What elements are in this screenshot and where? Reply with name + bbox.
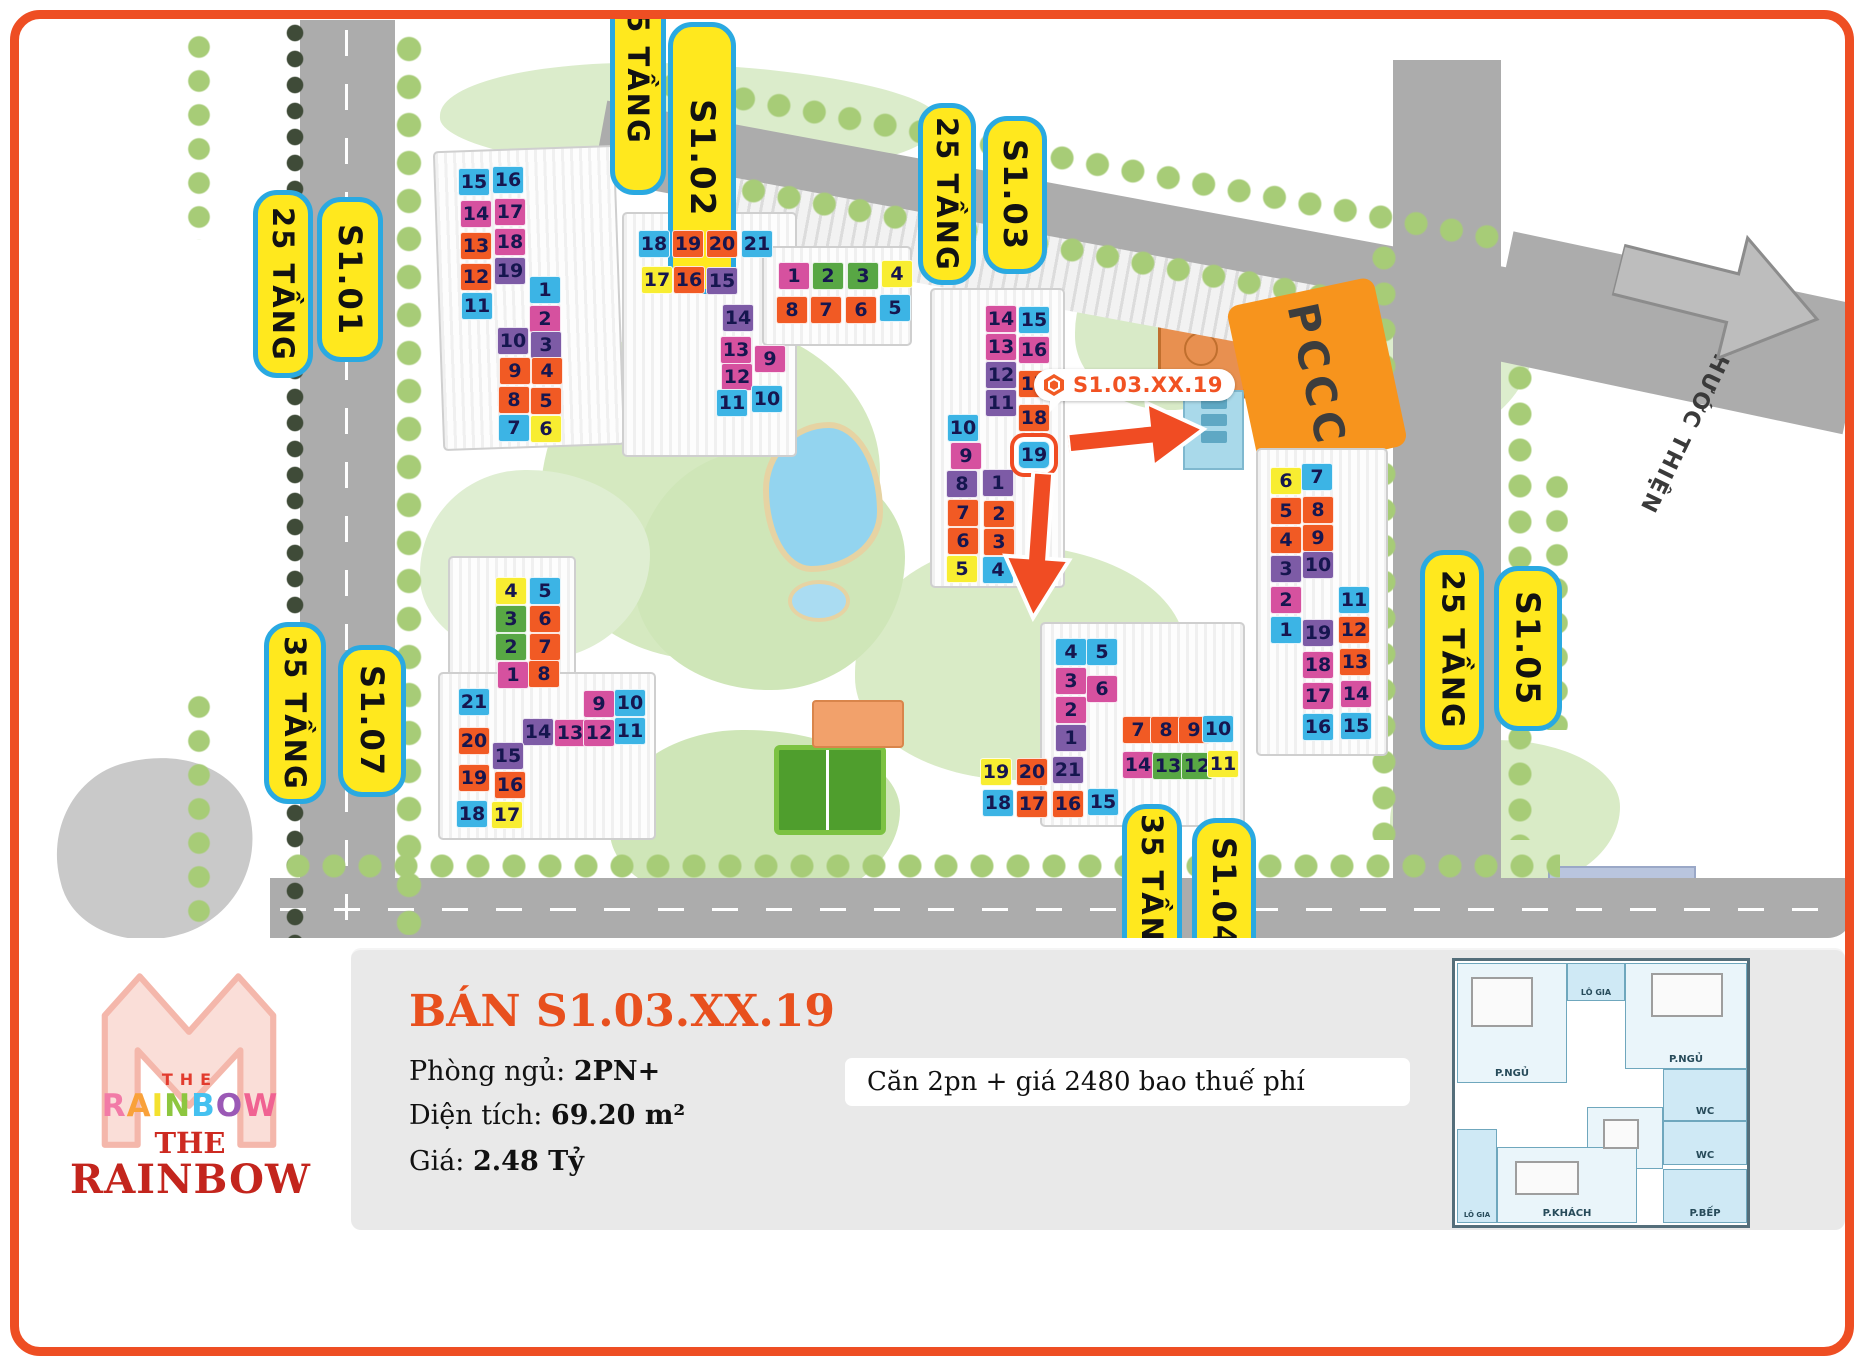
unit-S1.01-10[interactable]: 10 <box>497 327 529 355</box>
unit-S1.04-10[interactable]: 10 <box>1202 715 1234 743</box>
logo-the-serif: THE <box>70 1126 310 1160</box>
road-right <box>1393 60 1501 890</box>
unit-S1.03-18[interactable]: 18 <box>1018 404 1050 432</box>
unit-S1.04-11[interactable]: 11 <box>1207 750 1239 778</box>
room-logia-left: LÔ GIA <box>1457 1129 1497 1223</box>
unit-S1.04-15[interactable]: 15 <box>1087 788 1119 816</box>
listing-title: BÁN S1.03.XX.19 <box>409 986 835 1037</box>
road-lane-line <box>280 908 1830 911</box>
unit-S1.05-3[interactable]: 3 <box>1270 555 1302 583</box>
furniture-bed <box>1471 977 1533 1027</box>
unit-S1.07-2[interactable]: 2 <box>495 633 527 661</box>
field-bedrooms-label: Phòng ngủ: <box>409 1056 574 1087</box>
furniture-bed <box>1651 973 1723 1017</box>
unit-S1.02B-5[interactable]: 5 <box>879 294 911 322</box>
building-label-tang25-left: 25 TẦNG <box>253 190 313 378</box>
unit-S1.07-5[interactable]: 5 <box>529 577 561 605</box>
field-price-label: Giá: <box>409 1146 473 1177</box>
unit-S1.07-19[interactable]: 19 <box>458 764 490 792</box>
building-label-text: S1.03 <box>996 139 1034 251</box>
building-label-text: 35 TẦNG <box>1135 814 1169 938</box>
room-wc-2: WC <box>1663 1121 1747 1165</box>
building-label-text: S1.05 <box>1509 591 1548 706</box>
unit-S1.07-4[interactable]: 4 <box>495 577 527 605</box>
unit-marker-label: S1.03.XX.19 <box>1073 373 1223 397</box>
unit-S1.07-1[interactable]: 1 <box>497 661 529 689</box>
building-label-text: S1.02 <box>682 99 722 217</box>
unit-S1.05-15[interactable]: 15 <box>1340 712 1372 740</box>
unit-S1.03-8[interactable]: 8 <box>946 470 978 498</box>
unit-S1.01-16[interactable]: 16 <box>492 166 524 194</box>
unit-S1.01-12[interactable]: 12 <box>460 263 492 291</box>
note-input[interactable]: Căn 2pn + giá 2480 bao thuế phí <box>845 1058 1410 1106</box>
unit-S1.05-6[interactable]: 6 <box>1270 467 1302 495</box>
unit-S1.02-9[interactable]: 9 <box>754 345 786 373</box>
pccc-label: PCCC <box>1278 299 1357 453</box>
unit-S1.01-5[interactable]: 5 <box>530 387 562 415</box>
building-label-tang35-bottom: 35 TẦNG <box>1122 804 1182 938</box>
floor-plan: P.NGỦ LÔ GIA P.NGỦ WC WC P.ĂN LÔ GIA P.K… <box>1452 958 1750 1228</box>
building-label-s101: S1.01 <box>317 197 383 362</box>
unit-S1.03-19[interactable]: 19 <box>1018 441 1050 469</box>
tennis-net-line <box>826 750 829 830</box>
building-label-text: S1.01 <box>331 224 369 336</box>
building-label-text: 35 TẦNG <box>278 636 312 791</box>
unit-S1.02-15[interactable]: 15 <box>706 267 738 295</box>
field-price-value: 2.48 Tỷ <box>473 1146 584 1177</box>
unit-S1.02-14[interactable]: 14 <box>722 304 754 332</box>
room-label: P.NGỦ <box>1495 1068 1529 1079</box>
logo-rainbow-letter: W <box>243 1088 278 1124</box>
unit-S1.04-17[interactable]: 17 <box>1016 790 1048 818</box>
unit-S1.03-16[interactable]: 16 <box>1018 336 1050 364</box>
unit-S1.04-21[interactable]: 21 <box>1052 756 1084 784</box>
logo-rainbow-letter: I <box>152 1088 165 1124</box>
unit-S1.02B-7[interactable]: 7 <box>810 296 842 324</box>
unit-S1.07-3[interactable]: 3 <box>495 605 527 633</box>
building-label-tang25-mid: 25 TẦNG <box>918 103 976 285</box>
unit-S1.02-17[interactable]: 17 <box>641 266 673 294</box>
unit-S1.07-10[interactable]: 10 <box>614 689 646 717</box>
room-label: LÔ GIA <box>1581 988 1611 997</box>
unit-S1.01-3[interactable]: 3 <box>530 331 562 359</box>
unit-S1.02B-3[interactable]: 3 <box>847 262 879 290</box>
unit-S1.02-16[interactable]: 16 <box>673 266 705 294</box>
unit-S1.01-9[interactable]: 9 <box>499 357 531 385</box>
building-label-text: 25 TẦNG <box>621 12 655 145</box>
parking-area <box>35 735 275 938</box>
unit-S1.07-9[interactable]: 9 <box>583 690 615 718</box>
unit-S1.03-13[interactable]: 13 <box>985 333 1017 361</box>
unit-S1.02B-1[interactable]: 1 <box>778 262 810 290</box>
pond <box>788 580 850 622</box>
unit-S1.02-11[interactable]: 11 <box>716 389 748 417</box>
tree-line <box>280 848 1560 878</box>
building-label-tang25-top: 25 TẦNG <box>610 12 666 195</box>
unit-S1.02-21[interactable]: 21 <box>741 230 773 258</box>
unit-S1.04-14[interactable]: 14 <box>1122 751 1154 779</box>
tree-line <box>182 690 216 930</box>
unit-S1.05-8[interactable]: 8 <box>1302 496 1334 524</box>
building-label-text: S1.07 <box>353 665 391 777</box>
unit-S1.03-10[interactable]: 10 <box>947 414 979 442</box>
unit-S1.03-11[interactable]: 11 <box>985 389 1017 417</box>
unit-S1.02-20[interactable]: 20 <box>706 230 738 258</box>
unit-S1.01-13[interactable]: 13 <box>460 232 492 260</box>
unit-S1.01-11[interactable]: 11 <box>461 292 493 320</box>
logo-the-small: THE <box>70 1070 310 1089</box>
unit-S1.05-9[interactable]: 9 <box>1302 524 1334 552</box>
unit-S1.01-1[interactable]: 1 <box>529 276 561 304</box>
unit-S1.04-1[interactable]: 1 <box>1055 724 1087 752</box>
logo-rainbow-serif: RAINBOW <box>70 1156 310 1203</box>
unit-S1.01-17[interactable]: 17 <box>494 198 526 226</box>
building-label-tang25-right: 25 TẦNG <box>1420 550 1484 750</box>
building-label-text: S1.04 <box>1205 837 1243 938</box>
unit-S1.01-4[interactable]: 4 <box>531 357 563 385</box>
logo-rainbow-letter: N <box>164 1088 191 1124</box>
unit-S1.07-7[interactable]: 7 <box>529 633 561 661</box>
unit-S1.01-19[interactable]: 19 <box>494 257 526 285</box>
room-kitchen: P.BẾP <box>1663 1169 1747 1223</box>
logo-rainbow-colorful: RAINBOW <box>70 1088 310 1124</box>
unit-S1.02-13[interactable]: 13 <box>720 336 752 364</box>
unit-S1.07-18[interactable]: 18 <box>456 800 488 828</box>
unit-S1.02-12[interactable]: 12 <box>721 363 753 391</box>
logo-rainbow-letter: O <box>216 1088 243 1124</box>
unit-S1.04-6[interactable]: 6 <box>1086 675 1118 703</box>
logo-rainbow-letter: A <box>127 1088 152 1124</box>
unit-S1.02B-8[interactable]: 8 <box>776 296 808 324</box>
unit-S1.05-19[interactable]: 19 <box>1302 619 1334 647</box>
building-label-tang35-left: 35 TẦNG <box>264 622 326 804</box>
room-label: WC <box>1696 1150 1714 1161</box>
unit-S1.03-15[interactable]: 15 <box>1018 306 1050 334</box>
unit-S1.01-6[interactable]: 6 <box>530 415 562 443</box>
building-label-text: 25 TẦNG <box>1435 570 1470 730</box>
unit-S1.02B-4[interactable]: 4 <box>881 260 913 288</box>
building-label-s107: S1.07 <box>338 645 406 797</box>
unit-S1.05-11[interactable]: 11 <box>1338 586 1370 614</box>
pointer-arrow-right <box>1065 393 1212 479</box>
unit-S1.04-19[interactable]: 19 <box>980 758 1012 786</box>
building-label-text: 25 TẦNG <box>930 117 964 272</box>
unit-S1.07-20[interactable]: 20 <box>458 727 490 755</box>
unit-S1.07-17[interactable]: 17 <box>491 801 523 829</box>
pointer-arrow-down <box>997 470 1079 625</box>
room-label: WC <box>1696 1106 1714 1117</box>
room-logia-top: LÔ GIA <box>1567 963 1625 1001</box>
field-area-value: 69.20 m² <box>551 1100 685 1131</box>
unit-S1.02-18[interactable]: 18 <box>638 230 670 258</box>
building-label-s105: S1.05 <box>1494 566 1562 731</box>
unit-S1.01-18[interactable]: 18 <box>494 228 526 256</box>
logo-rainbow-letter: R <box>102 1088 127 1124</box>
unit-S1.01-15[interactable]: 15 <box>458 168 490 196</box>
building-label-s103: S1.03 <box>983 116 1047 274</box>
site-map: PCCC ĐI Đ. PHƯỚC THIỆN 25 TẦNGS1.0125 TẦ… <box>12 12 1852 938</box>
unit-marker[interactable]: S1.03.XX.19 <box>1034 369 1235 401</box>
unit-S1.03-5[interactable]: 5 <box>946 555 978 583</box>
furniture-sofa <box>1515 1161 1579 1195</box>
unit-S1.02-19[interactable]: 19 <box>672 230 704 258</box>
unit-S1.05-16[interactable]: 16 <box>1302 713 1334 741</box>
field-price: Giá: 2.48 Tỷ <box>409 1146 584 1177</box>
unit-S1.07-21[interactable]: 21 <box>458 688 490 716</box>
unit-S1.01-8[interactable]: 8 <box>498 386 530 414</box>
unit-S1.04-3[interactable]: 3 <box>1055 667 1087 695</box>
unit-S1.04-2[interactable]: 2 <box>1055 696 1087 724</box>
unit-S1.05-5[interactable]: 5 <box>1270 497 1302 525</box>
sports-pad <box>812 700 904 748</box>
unit-S1.01-2[interactable]: 2 <box>529 305 561 333</box>
tree-line <box>390 30 422 935</box>
unit-S1.05-10[interactable]: 10 <box>1302 551 1334 579</box>
room-label: P.KHÁCH <box>1543 1208 1592 1219</box>
tree-line <box>182 30 216 240</box>
unit-S1.05-14[interactable]: 14 <box>1340 680 1372 708</box>
unit-S1.05-12[interactable]: 12 <box>1338 616 1370 644</box>
unit-S1.01-7[interactable]: 7 <box>498 414 530 442</box>
unit-S1.05-1[interactable]: 1 <box>1270 616 1302 644</box>
unit-S1.05-18[interactable]: 18 <box>1302 651 1334 679</box>
unit-S1.02-10[interactable]: 10 <box>751 385 783 413</box>
field-bedrooms-value: 2PN+ <box>574 1056 660 1087</box>
building-label-s104: S1.04 <box>1192 818 1256 938</box>
unit-S1.04-20[interactable]: 20 <box>1016 758 1048 786</box>
unit-S1.04-13[interactable]: 13 <box>1152 752 1184 780</box>
unit-S1.03-14[interactable]: 14 <box>985 305 1017 333</box>
unit-S1.07-14[interactable]: 14 <box>522 718 554 746</box>
building-label-text: 25 TẦNG <box>266 207 300 362</box>
field-area-label: Diện tích: <box>409 1100 551 1131</box>
rainbow-hexagon-icon <box>1042 373 1066 397</box>
unit-S1.05-13[interactable]: 13 <box>1339 648 1371 676</box>
room-label: LÔ GIA <box>1464 1211 1490 1219</box>
unit-S1.04-5[interactable]: 5 <box>1086 638 1118 666</box>
unit-S1.07-6[interactable]: 6 <box>529 605 561 633</box>
rainbow-logo: THE RAINBOW THE RAINBOW <box>70 958 310 1218</box>
furniture-table <box>1603 1119 1639 1149</box>
room-label: P.NGỦ <box>1669 1054 1703 1065</box>
field-area: Diện tích: 69.20 m² <box>409 1100 685 1131</box>
unit-S1.05-2[interactable]: 2 <box>1270 586 1302 614</box>
unit-S1.07-13[interactable]: 13 <box>554 719 586 747</box>
unit-S1.05-4[interactable]: 4 <box>1270 526 1302 554</box>
unit-S1.07-8[interactable]: 8 <box>528 660 560 688</box>
unit-S1.07-16[interactable]: 16 <box>494 771 526 799</box>
unit-S1.07-11[interactable]: 11 <box>614 717 646 745</box>
logo-rainbow-letter: B <box>191 1088 216 1124</box>
unit-S1.04-16[interactable]: 16 <box>1052 790 1084 818</box>
unit-S1.05-7[interactable]: 7 <box>1301 463 1333 491</box>
unit-S1.04-4[interactable]: 4 <box>1055 638 1087 666</box>
unit-S1.07-15[interactable]: 15 <box>492 742 524 770</box>
unit-S1.03-6[interactable]: 6 <box>947 527 979 555</box>
unit-S1.03-12[interactable]: 12 <box>985 361 1017 389</box>
unit-S1.07-12[interactable]: 12 <box>583 719 615 747</box>
road-lane-line <box>345 30 348 935</box>
room-label: P.BẾP <box>1689 1208 1720 1219</box>
unit-S1.02B-6[interactable]: 6 <box>845 296 877 324</box>
field-bedrooms: Phòng ngủ: 2PN+ <box>409 1056 660 1087</box>
unit-S1.01-14[interactable]: 14 <box>460 200 492 228</box>
unit-S1.02B-2[interactable]: 2 <box>812 262 844 290</box>
tennis-court <box>774 745 886 835</box>
unit-S1.04-18[interactable]: 18 <box>982 789 1014 817</box>
unit-S1.03-7[interactable]: 7 <box>947 499 979 527</box>
unit-S1.03-9[interactable]: 9 <box>950 442 982 470</box>
unit-S1.05-17[interactable]: 17 <box>1302 682 1334 710</box>
room-wc-1: WC <box>1663 1069 1747 1121</box>
